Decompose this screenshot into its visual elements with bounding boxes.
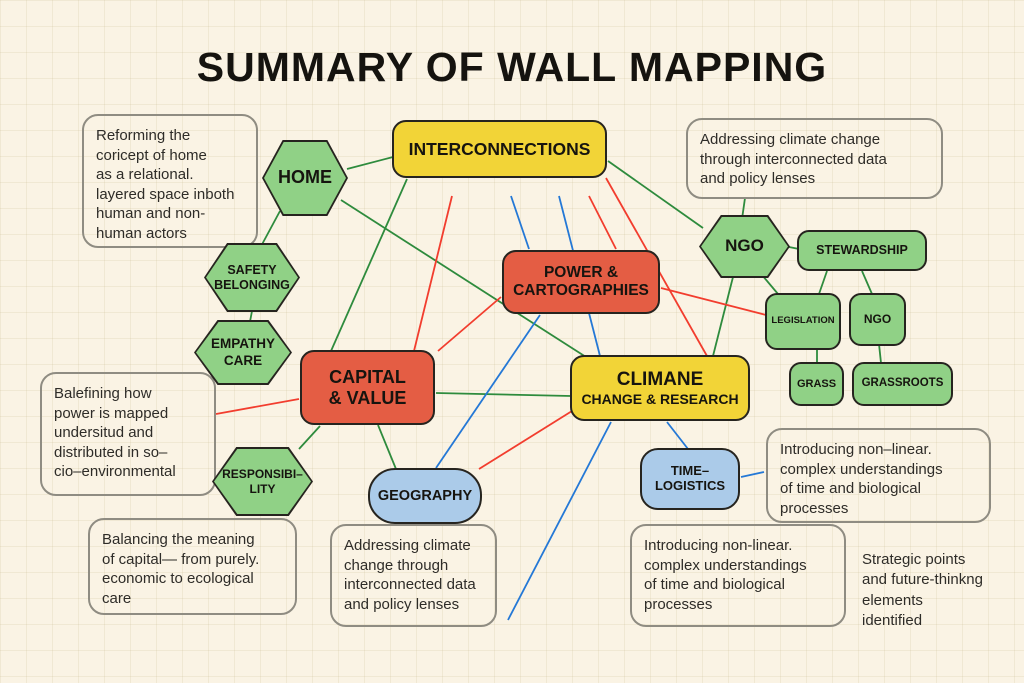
edge-climane-addressing_bottom_note bbox=[508, 422, 611, 620]
node-stewardship: STEWARDSHIP bbox=[797, 230, 927, 271]
note-addressing-climate-top: Addressing climate change through interc… bbox=[686, 118, 943, 199]
edge-capital_value-climane bbox=[436, 393, 571, 396]
edge-power_cartographies-geography bbox=[436, 315, 540, 468]
node-grassroots: GRASSROOTS bbox=[852, 362, 953, 406]
node-climane-subtitle: CHANGE & RESEARCH bbox=[581, 391, 738, 407]
edge-interconnections-power_cartographies bbox=[511, 196, 529, 249]
note-strategic-points: Strategic points and future-thinkng elem… bbox=[862, 550, 1012, 631]
note-introducing-nonlinear-right: Introducing non–linear. complex understa… bbox=[766, 428, 991, 523]
note-addressing-climate-bottom: Addressing climate change through interc… bbox=[330, 524, 497, 627]
node-responsibility-label: RESPONSIBI– LITY bbox=[212, 447, 313, 516]
node-interconnections: INTERCONNECTIONS bbox=[392, 120, 607, 178]
node-safety-belonging: SAFETY BELONGING bbox=[204, 243, 300, 312]
node-home: HOME bbox=[262, 140, 348, 216]
edge-interconnections-power_cartographies bbox=[589, 196, 616, 249]
node-time-logistics: TIME– LOGISTICS bbox=[640, 448, 740, 510]
node-legislation: LEGISLATION bbox=[765, 293, 841, 350]
edge-ngo_small-grassroots bbox=[879, 344, 881, 363]
edge-responsibility-capital_value bbox=[299, 426, 320, 449]
edge-stewardship-ngo_small bbox=[862, 271, 872, 294]
note-balancing-capital: Balancing the meaning of capital— from p… bbox=[88, 518, 297, 615]
page-title: SUMMARY OF WALL MAPPING bbox=[0, 44, 1024, 91]
node-climane-title: CLIMANE bbox=[617, 369, 704, 391]
edge-geography-climane bbox=[479, 411, 572, 469]
edge-capital_value-power_cartographies bbox=[438, 297, 501, 351]
note-reforming-home: Reforming the coricept of home as a rela… bbox=[82, 114, 258, 248]
node-empathy-care: EMPATHY CARE bbox=[194, 320, 292, 385]
edge-capital_value-geography bbox=[378, 425, 396, 469]
edge-stewardship-legislation bbox=[819, 271, 827, 294]
node-grass: GRASS bbox=[789, 362, 844, 406]
note-introducing-nonlinear-bottom: Introducing non-linear. complex understa… bbox=[630, 524, 846, 627]
edge-balefining_note-capital_value bbox=[216, 399, 299, 414]
node-ngo-label: NGO bbox=[699, 215, 790, 278]
node-capital-value: CAPITAL & VALUE bbox=[300, 350, 435, 425]
node-responsibility: RESPONSIBI– LITY bbox=[212, 447, 313, 516]
wall-mapping-diagram: SUMMARY OF WALL MAPPING Reforming the co… bbox=[0, 0, 1024, 683]
edge-climane-time_logistics bbox=[667, 422, 688, 449]
edge-ngo-climane bbox=[713, 277, 733, 356]
node-safety-belonging-label: SAFETY BELONGING bbox=[204, 243, 300, 312]
node-empathy-care-label: EMPATHY CARE bbox=[194, 320, 292, 385]
node-power-cartographies: POWER & CARTOGRAPHIES bbox=[502, 250, 660, 314]
node-geography: GEOGRAPHY bbox=[368, 468, 482, 524]
node-climane-change-research: CLIMANE CHANGE & RESEARCH bbox=[570, 355, 750, 421]
node-ngo-small: NGO bbox=[849, 293, 906, 346]
edge-time_logistics-introducing_right_note bbox=[741, 472, 764, 477]
note-balefining-power: Balefining how power is mapped undersitu… bbox=[40, 372, 216, 496]
edge-interconnections-capital_value bbox=[414, 196, 452, 351]
node-home-label: HOME bbox=[262, 140, 348, 216]
edge-home-interconnections bbox=[347, 157, 393, 169]
node-ngo: NGO bbox=[699, 215, 790, 278]
